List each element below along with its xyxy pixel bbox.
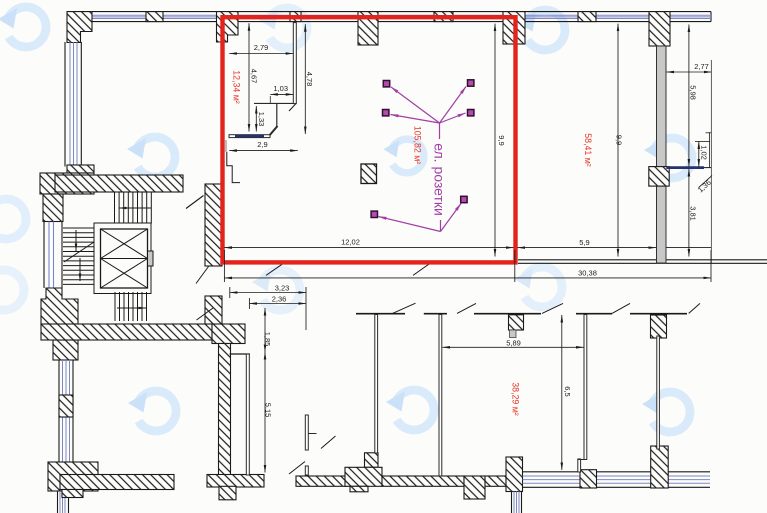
svg-text:2,79: 2,79: [254, 43, 269, 52]
svg-text:9,9: 9,9: [615, 135, 624, 145]
svg-text:38,29 м²: 38,29 м²: [511, 382, 521, 416]
svg-text:58,41 м²: 58,41 м²: [583, 133, 593, 167]
svg-text:12,02: 12,02: [341, 237, 360, 246]
svg-text:105,82 м²: 105,82 м²: [413, 126, 423, 164]
svg-text:2,77: 2,77: [694, 62, 709, 71]
svg-text:1,03: 1,03: [273, 84, 288, 93]
svg-text:12,34 м²: 12,34 м²: [232, 70, 242, 104]
svg-text:1,85: 1,85: [263, 332, 272, 347]
svg-text:ел. розетки: ел. розетки: [432, 143, 448, 216]
svg-text:3,23: 3,23: [275, 284, 290, 293]
svg-text:3,81: 3,81: [689, 206, 698, 221]
svg-text:1,33: 1,33: [257, 112, 266, 127]
svg-text:30,38: 30,38: [578, 269, 597, 278]
svg-text:2,9: 2,9: [257, 140, 267, 149]
svg-text:4,78: 4,78: [305, 72, 314, 87]
svg-text:2,36: 2,36: [272, 295, 287, 304]
svg-text:4,67: 4,67: [250, 69, 259, 84]
svg-text:5,89: 5,89: [506, 338, 521, 347]
svg-text:5,98: 5,98: [689, 85, 698, 100]
svg-text:5,9: 5,9: [579, 238, 589, 247]
svg-text:1,02: 1,02: [700, 145, 709, 160]
svg-text:5,15: 5,15: [264, 403, 273, 418]
svg-text:6,5: 6,5: [563, 386, 572, 396]
svg-text:9,9: 9,9: [497, 135, 506, 145]
